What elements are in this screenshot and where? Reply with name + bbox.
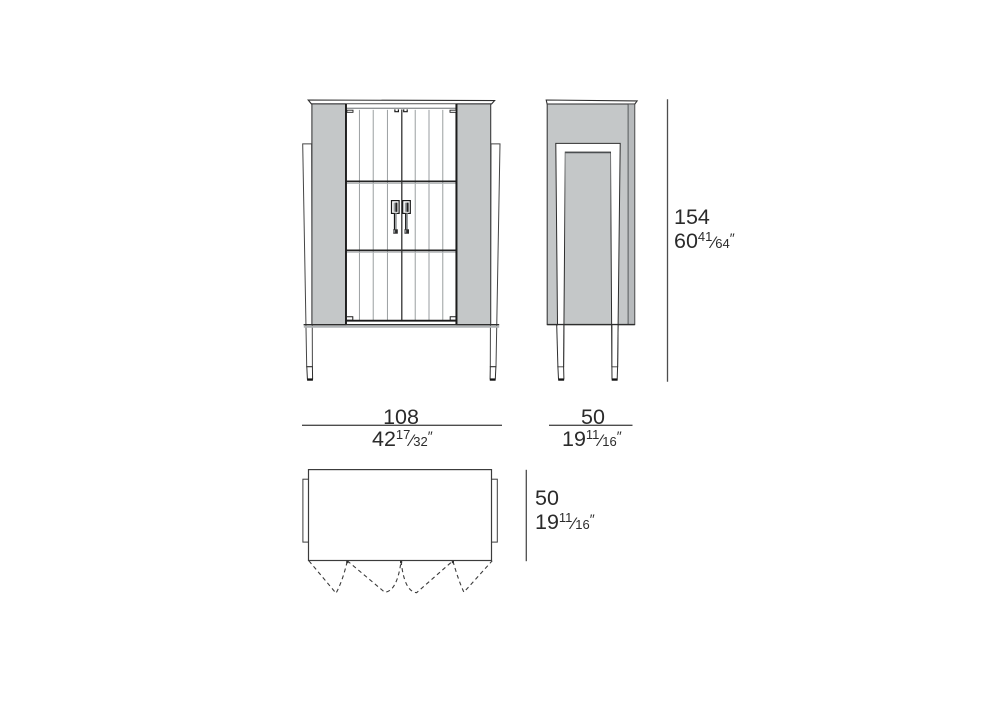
svg-text:50: 50 xyxy=(581,405,605,429)
svg-text:50: 50 xyxy=(535,486,559,510)
svg-text:108: 108 xyxy=(383,405,419,429)
svg-text:154: 154 xyxy=(674,205,710,229)
